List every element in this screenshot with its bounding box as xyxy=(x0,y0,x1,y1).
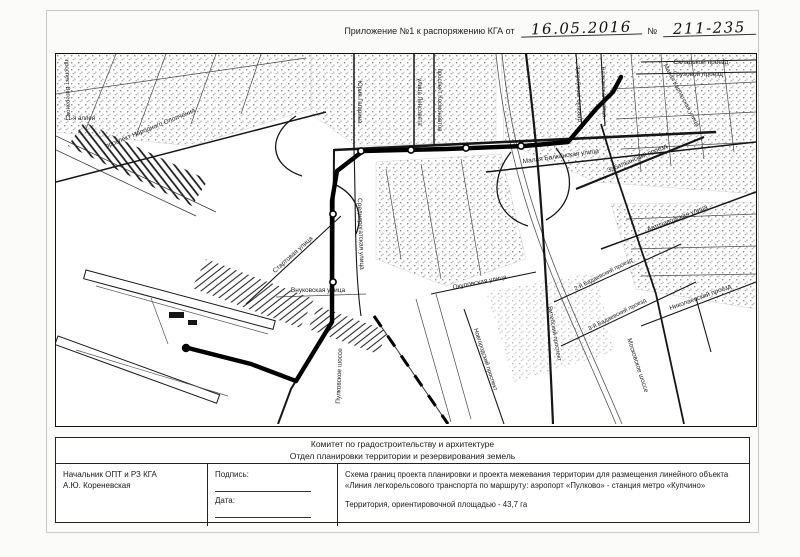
title-block: Комитет по градостроительству и архитект… xyxy=(55,437,750,523)
area-note: Территория, ориентировочной площадью - 4… xyxy=(345,499,742,510)
street-label: Складской проезд xyxy=(674,58,729,66)
map-frame: Складской проездГрузовой проездМалая Кар… xyxy=(55,53,757,427)
route-endpoint-airport xyxy=(182,344,190,352)
street-label: 11-я аллея xyxy=(65,116,95,122)
number-sign-label: № xyxy=(648,26,658,36)
date-blank-line xyxy=(215,508,311,518)
scheme-title: Схема границ проекта планировки и проект… xyxy=(345,469,742,492)
official-name: А.Ю. Кореневская xyxy=(63,480,200,492)
official-position: Начальник ОПТ и РЗ КГА xyxy=(63,469,200,481)
street-label: Новгородский проспект xyxy=(472,327,499,391)
organization-header: Комитет по градостроительству и архитект… xyxy=(56,438,749,464)
signature-label: Подпись: xyxy=(215,470,249,479)
signature-cell: Подпись: Дата: xyxy=(208,464,338,526)
handwritten-date: 16.05.2016 xyxy=(520,20,641,37)
signature-blank-line xyxy=(215,482,311,492)
street-label: Юрия Гагарина xyxy=(356,81,362,124)
document-header: Приложение №1 к распоряжению КГА от 16.0… xyxy=(344,22,756,36)
street-label: проспект Космонавтов xyxy=(436,69,442,132)
railway-yard-hatching xyxy=(56,122,388,354)
street-label: Пулковское шоссе xyxy=(335,348,344,404)
scheme-title-cell: Схема границ проекта планировки и проект… xyxy=(338,464,749,526)
department-name: Отдел планировки территории и резервиров… xyxy=(290,450,515,462)
street-label: Грузовой проезд xyxy=(673,70,723,78)
handwritten-number: 211-235 xyxy=(663,21,756,37)
date-label: Дата: xyxy=(215,496,235,505)
org-name: Комитет по градостроительству и архитект… xyxy=(311,438,494,450)
street-label: Среднерогатская улица xyxy=(356,198,366,270)
street-label: улица Ленсовета xyxy=(416,78,422,126)
official-cell: Начальник ОПТ и РЗ КГА А.Ю. Кореневская xyxy=(56,464,208,526)
street-label: Внуковская улица xyxy=(291,287,346,294)
city-map: Складской проездГрузовой проездМалая Кар… xyxy=(56,54,756,424)
street-label: Московское шоссе xyxy=(625,338,649,394)
street-label: Стартовая улица xyxy=(272,235,315,275)
header-prefix-label: Приложение №1 к распоряжению КГА от xyxy=(344,26,514,36)
